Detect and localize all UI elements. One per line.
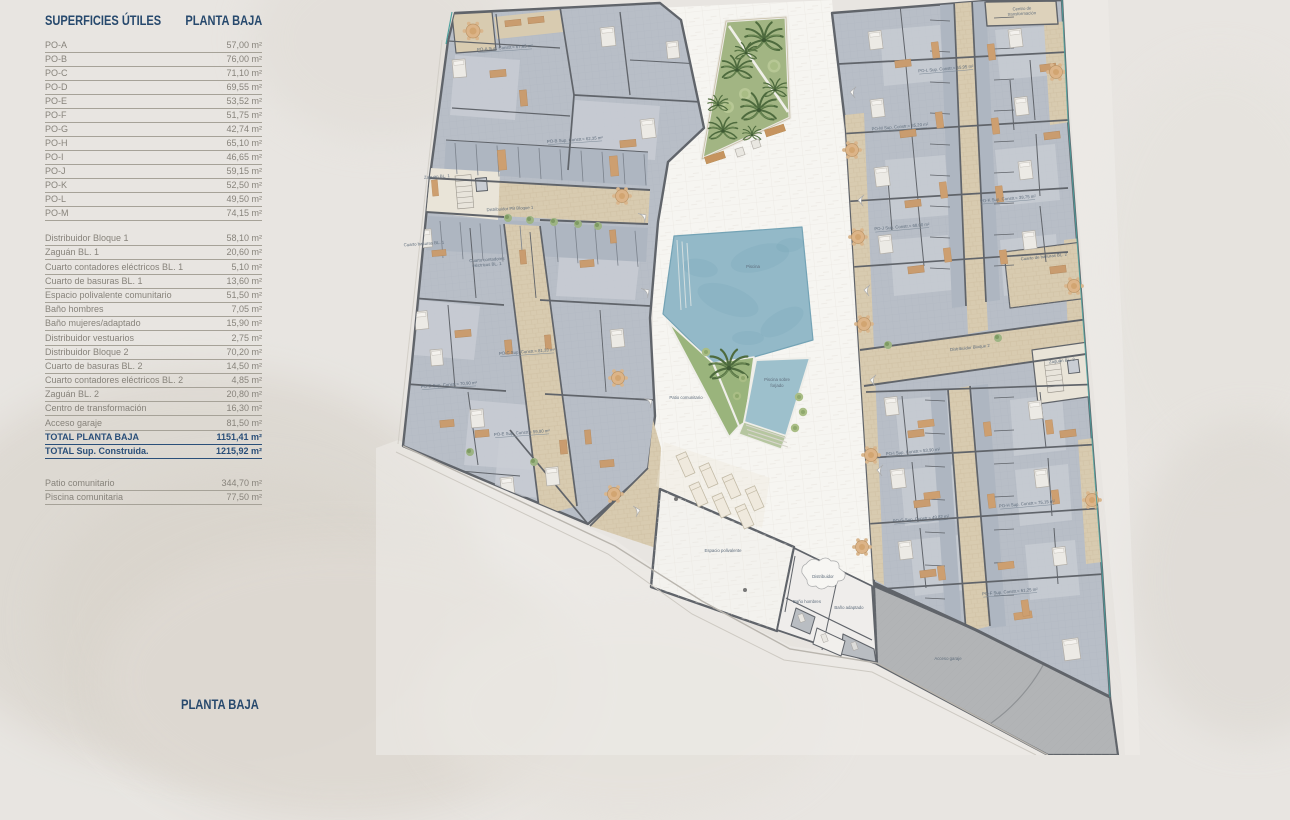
svg-text:Baño adaptado: Baño adaptado: [834, 605, 864, 610]
svg-text:Patio comunitario: Patio comunitario: [669, 395, 703, 400]
svg-text:Piscina sobre: Piscina sobre: [764, 377, 790, 382]
svg-text:Acceso garaje: Acceso garaje: [934, 656, 962, 661]
svg-text:Distribuidor: Distribuidor: [812, 574, 834, 579]
svg-text:Espacio polivalente: Espacio polivalente: [704, 548, 742, 553]
svg-text:forjado: forjado: [770, 383, 784, 388]
svg-text:Piscina: Piscina: [746, 264, 760, 269]
svg-text:Baño hombres: Baño hombres: [793, 599, 821, 604]
